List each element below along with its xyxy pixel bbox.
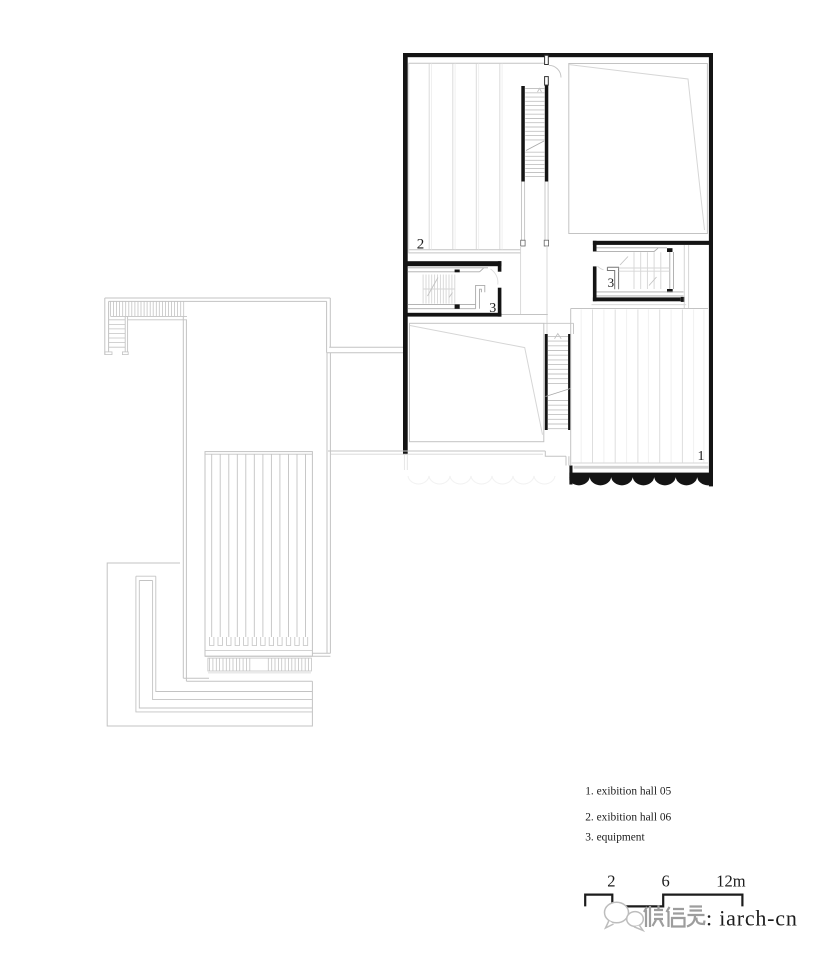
svg-text:2: 2: [417, 237, 425, 253]
svg-text:3: 3: [489, 301, 496, 316]
svg-text:6: 6: [662, 871, 670, 890]
svg-text:1: 1: [698, 449, 705, 464]
svg-text:1. exibition hall 05: 1. exibition hall 05: [585, 786, 671, 798]
svg-text:3. equipment: 3. equipment: [585, 831, 645, 843]
svg-text:2: 2: [607, 871, 615, 890]
svg-text:3: 3: [608, 275, 615, 290]
svg-text:12m: 12m: [716, 871, 746, 890]
svg-text:2. exibition hall 06: 2. exibition hall 06: [585, 812, 671, 824]
svg-text:: iarch-cn: : iarch-cn: [706, 906, 798, 931]
